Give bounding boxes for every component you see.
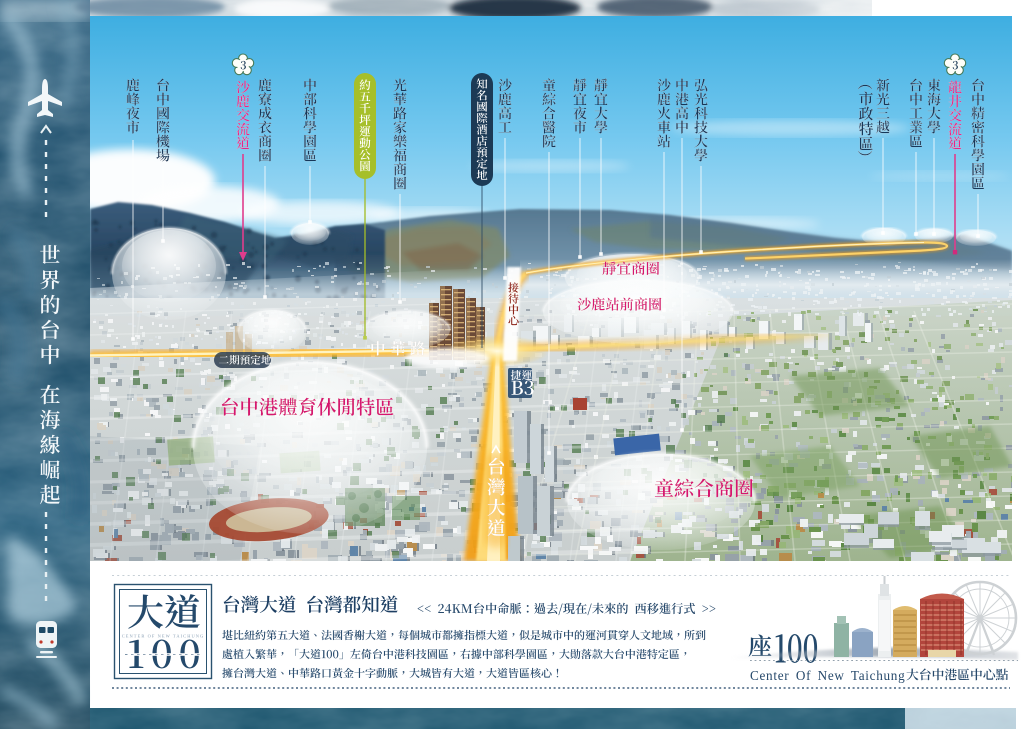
svg-text:Center Of New Taichung: Center Of New Taichung — [750, 668, 905, 683]
svg-text:CENTER OF NEW TAICHUNG: CENTER OF NEW TAICHUNG — [122, 634, 205, 639]
